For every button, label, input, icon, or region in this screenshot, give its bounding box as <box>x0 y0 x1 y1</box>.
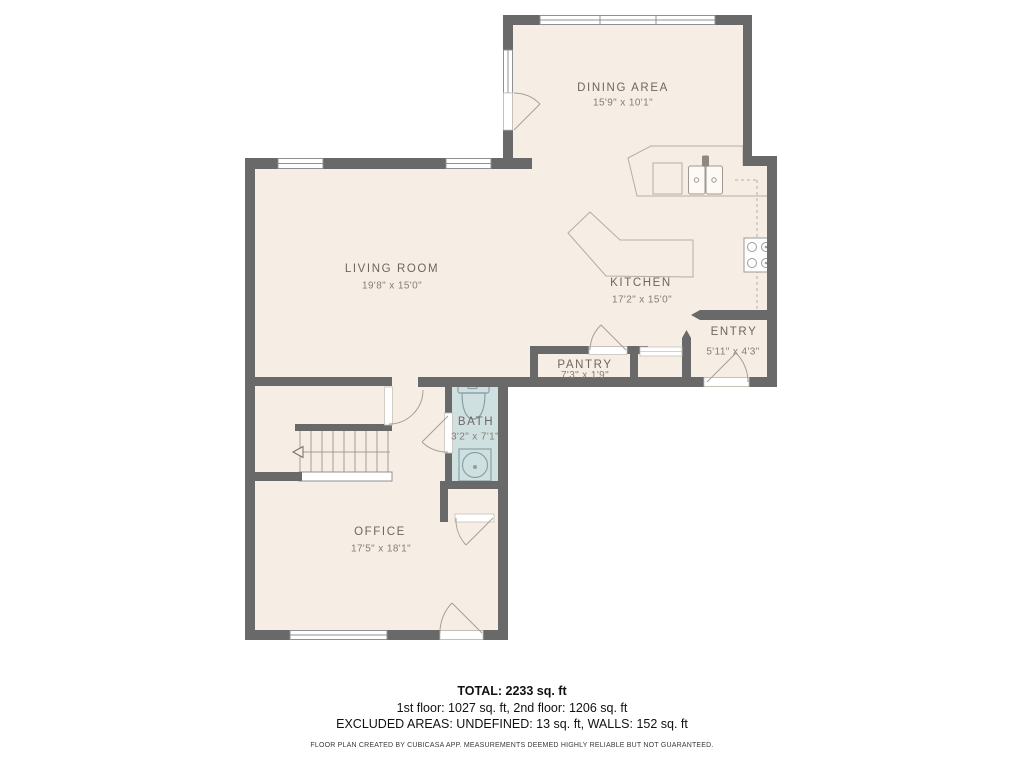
wall <box>767 156 777 387</box>
window <box>446 159 491 169</box>
room-dims-dining-area: 15'9" x 10'1" <box>593 98 653 109</box>
wall <box>498 377 508 640</box>
room-label-entry: ENTRY <box>711 326 758 338</box>
wall <box>445 481 505 489</box>
stair-rail-wall <box>295 424 392 431</box>
wall <box>440 481 448 522</box>
wall <box>245 472 302 481</box>
room-dims-entry: 5'11" x 4'3" <box>706 347 759 358</box>
window <box>540 16 715 25</box>
room-label-dining-area: DINING AREA <box>577 82 669 94</box>
wall <box>700 310 772 320</box>
excluded-areas-text: EXCLUDED AREAS: UNDEFINED: 13 sq. ft, WA… <box>0 717 1024 731</box>
door-opening <box>440 631 483 640</box>
room-dims-office: 17'5" x 18'1" <box>351 544 411 555</box>
room-dims-bath: 3'2" x 7'1" <box>451 432 499 443</box>
room-dims-pantry-clipped: 7'3" x 1'9" <box>535 370 635 378</box>
wall <box>245 158 255 640</box>
kitchen-appliance <box>653 163 682 194</box>
room-label-bath: BATH <box>458 416 494 428</box>
door-opening <box>455 514 494 522</box>
room-label-living-room: LIVING ROOM <box>345 263 439 275</box>
wall <box>630 346 638 387</box>
wall <box>743 15 752 160</box>
room-dims-living-room: 19'8" x 15'0" <box>362 281 422 292</box>
room-dims-kitchen: 17'2" x 15'0" <box>612 295 672 306</box>
door-opening <box>589 347 627 355</box>
sliding-door <box>640 347 682 356</box>
window <box>504 50 513 93</box>
room-label-office: OFFICE <box>354 526 406 538</box>
floor-plan-drawing <box>0 0 1024 768</box>
window <box>278 159 323 169</box>
door-leaf <box>385 387 393 425</box>
total-area-text: TOTAL: 2233 sq. ft <box>0 684 1024 698</box>
floor-plan-page: DINING AREA 15'9" x 10'1" LIVING ROOM 19… <box>0 0 1024 768</box>
floor-areas-text: 1st floor: 1027 sq. ft, 2nd floor: 1206 … <box>0 701 1024 715</box>
door-opening <box>504 93 513 130</box>
room-label-kitchen: KITCHEN <box>610 277 672 289</box>
disclaimer-text: FLOOR PLAN CREATED BY CUBICASA APP. MEAS… <box>0 742 1024 749</box>
window <box>290 631 387 640</box>
stair-landing <box>299 472 392 481</box>
room-dims-pantry: 7'3" x 1'9" <box>535 370 635 378</box>
wall <box>682 338 691 387</box>
wall <box>248 377 392 386</box>
